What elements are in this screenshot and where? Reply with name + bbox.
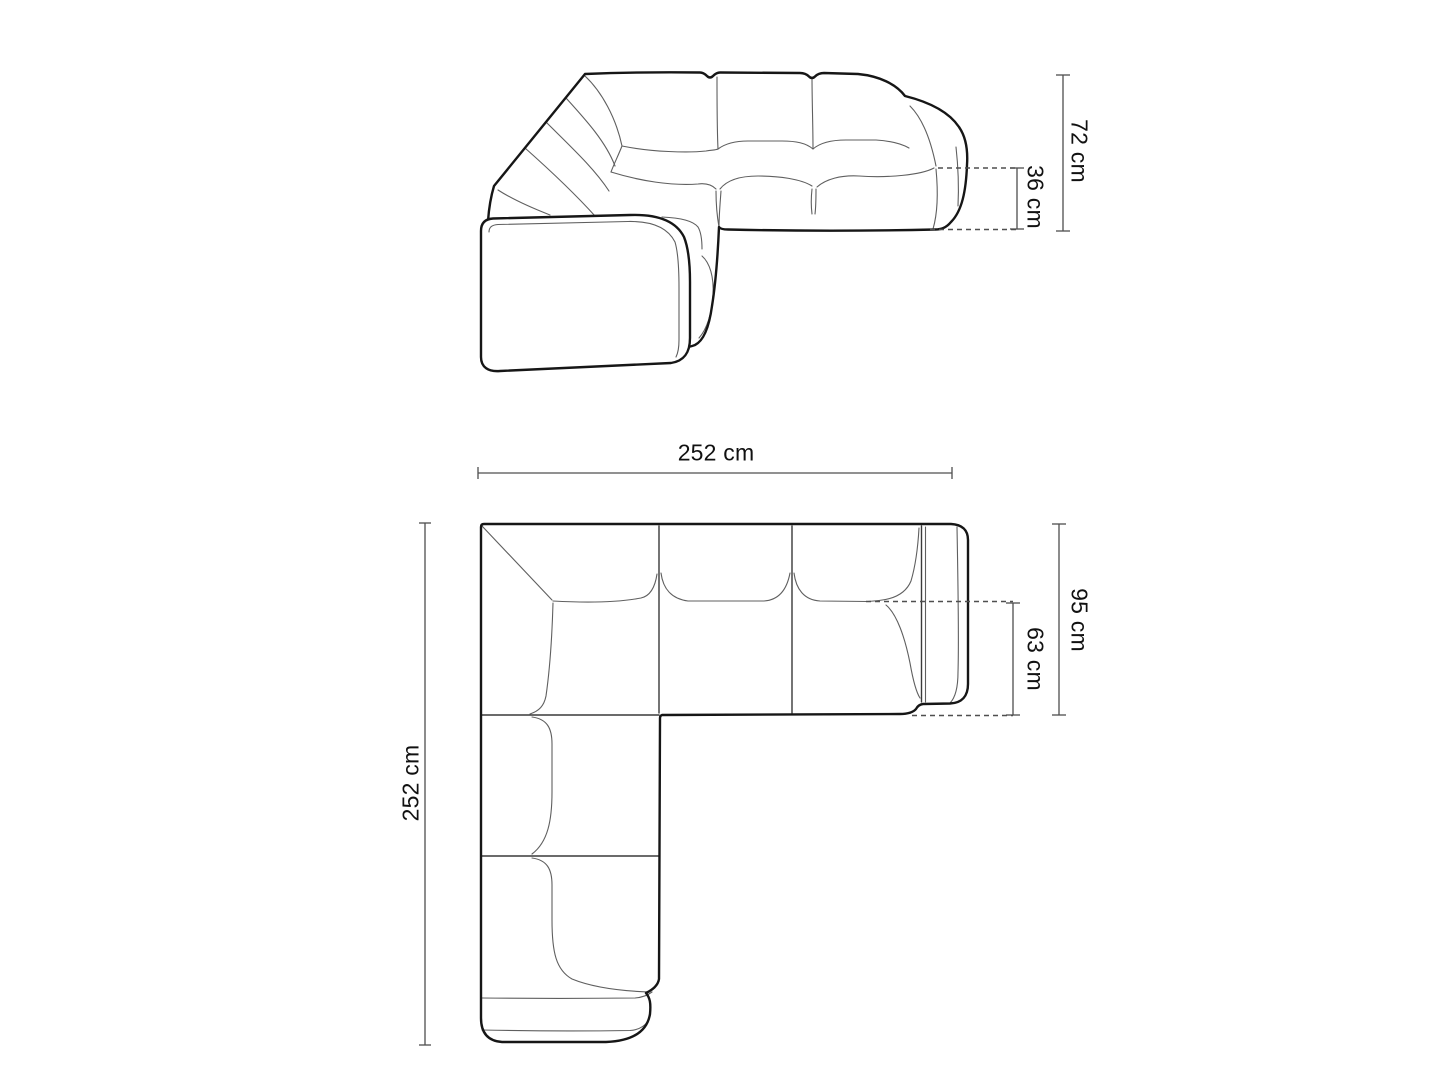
elevation-armrest-block	[481, 215, 690, 371]
sofa-dimension-diagram: 72 cm 36 cm 252 cm 252 cm 95 cm 63 cm	[0, 0, 1454, 1090]
dimension-label-total-width: 252 cm	[678, 440, 755, 467]
plan-view	[419, 467, 1066, 1045]
dimension-label-total-height: 72 cm	[1066, 119, 1093, 183]
dimension-label-total-depth: 252 cm	[398, 745, 425, 822]
dimension-label-seat-depth: 63 cm	[1022, 627, 1049, 691]
line-art	[0, 0, 1454, 1090]
elevation-dimensions	[930, 75, 1070, 231]
dimension-label-seat-height: 36 cm	[1022, 165, 1049, 229]
elevation-view	[481, 72, 1070, 371]
dimension-label-side-depth: 95 cm	[1066, 588, 1093, 652]
